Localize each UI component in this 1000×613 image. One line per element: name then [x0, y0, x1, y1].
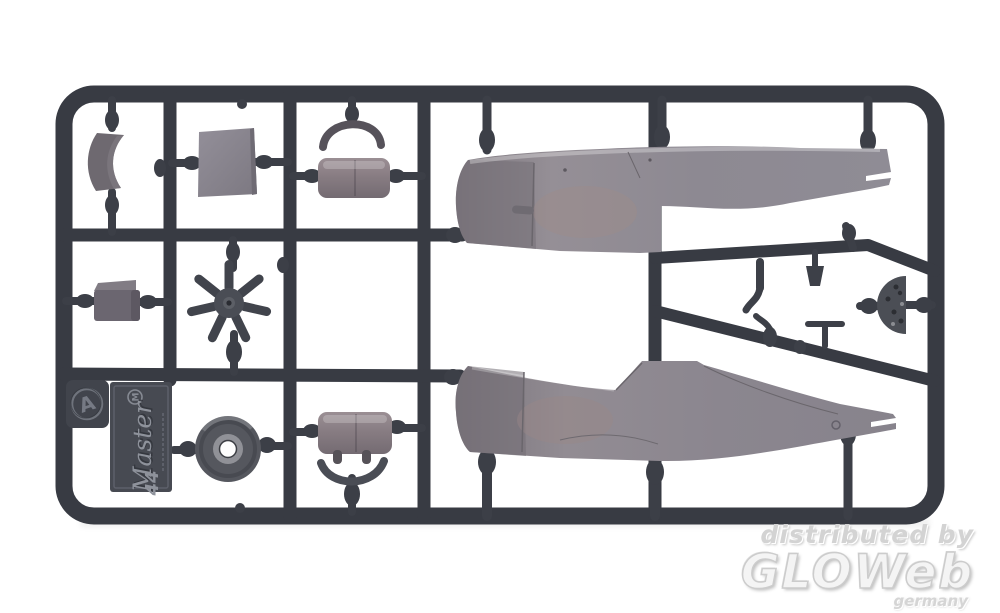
part-label-plate: M Master Master 44	[110, 382, 172, 497]
part-sprue-tab: A	[66, 380, 109, 428]
part-engine-block	[94, 280, 140, 321]
plate-kit-number: 44	[142, 470, 163, 496]
part-windscreen-bow	[321, 461, 384, 482]
part-bulkhead-panel	[198, 128, 257, 197]
runner-horizontal-2	[64, 374, 460, 376]
plate-maker-mark: M	[132, 392, 142, 401]
part-radial-engine	[186, 260, 272, 344]
part-fuselage-upper	[456, 146, 891, 253]
watermark-logo: GLOWeb	[741, 549, 974, 596]
watermark-distributed-by: distributed by	[741, 522, 974, 547]
part-front-canopy	[318, 158, 390, 198]
part-wheel	[195, 416, 261, 482]
part-fuselage-lower	[456, 361, 897, 461]
part-instrument-panel	[877, 276, 906, 334]
runner-diagonal-upper	[655, 245, 935, 271]
photo-canvas: A M Master Master 44	[0, 0, 1000, 613]
part-cowl-segment	[88, 133, 124, 191]
part-rear-canopy	[318, 412, 392, 464]
watermark: distributed by GLOWeb germany	[741, 522, 974, 609]
part-canopy-arc	[323, 124, 381, 147]
